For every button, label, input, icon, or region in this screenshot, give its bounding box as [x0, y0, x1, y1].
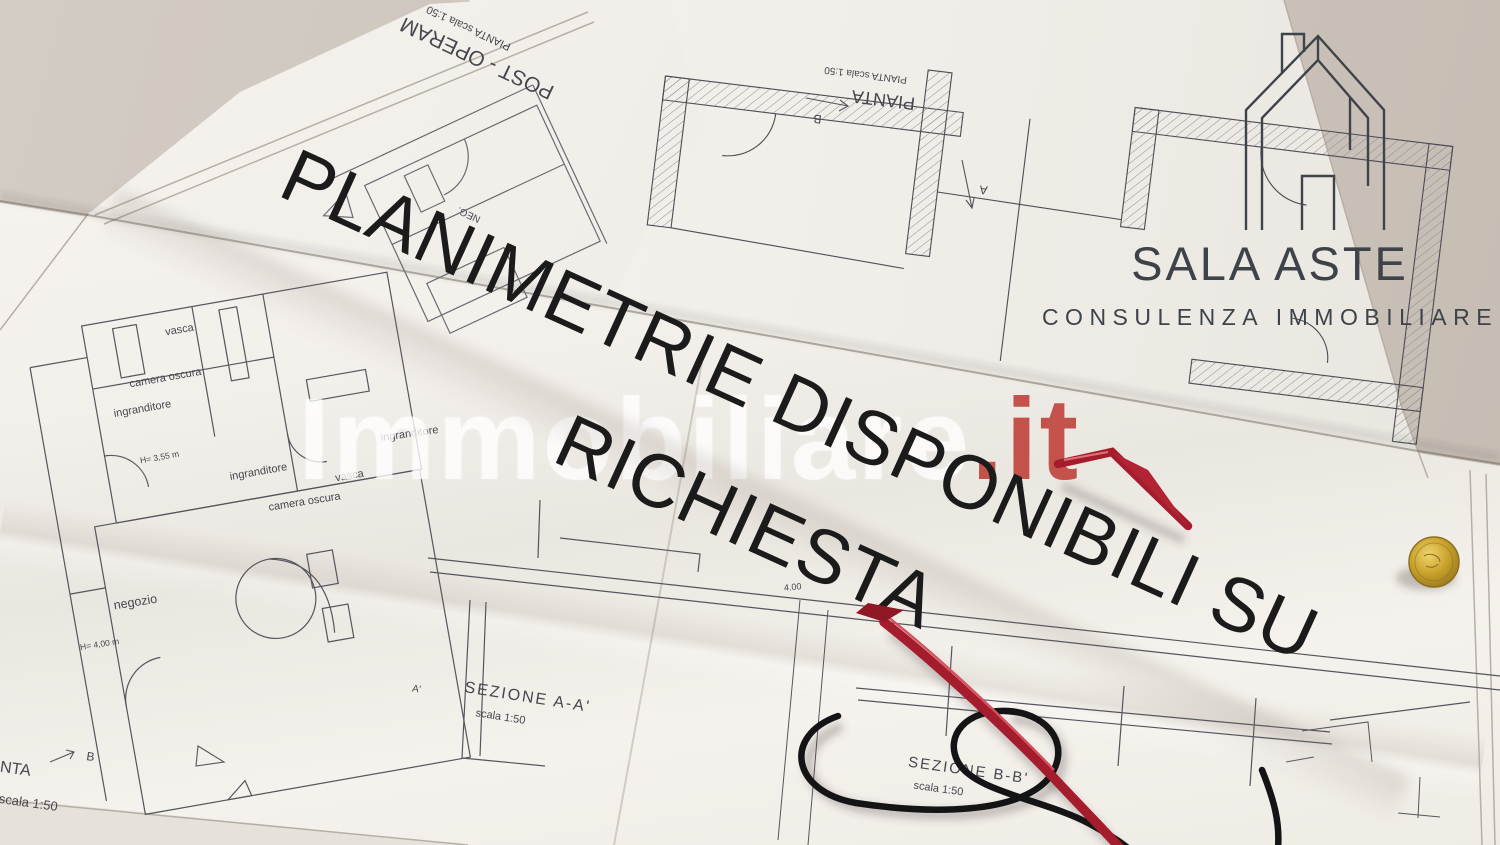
- photo-objects: [0, 0, 1500, 845]
- gold-coin: [1409, 537, 1459, 587]
- photo-stage: POST - OPERAM PIANTA scala 1:50 NEG. PIA…: [0, 0, 1500, 845]
- object-shadows: [809, 486, 1456, 845]
